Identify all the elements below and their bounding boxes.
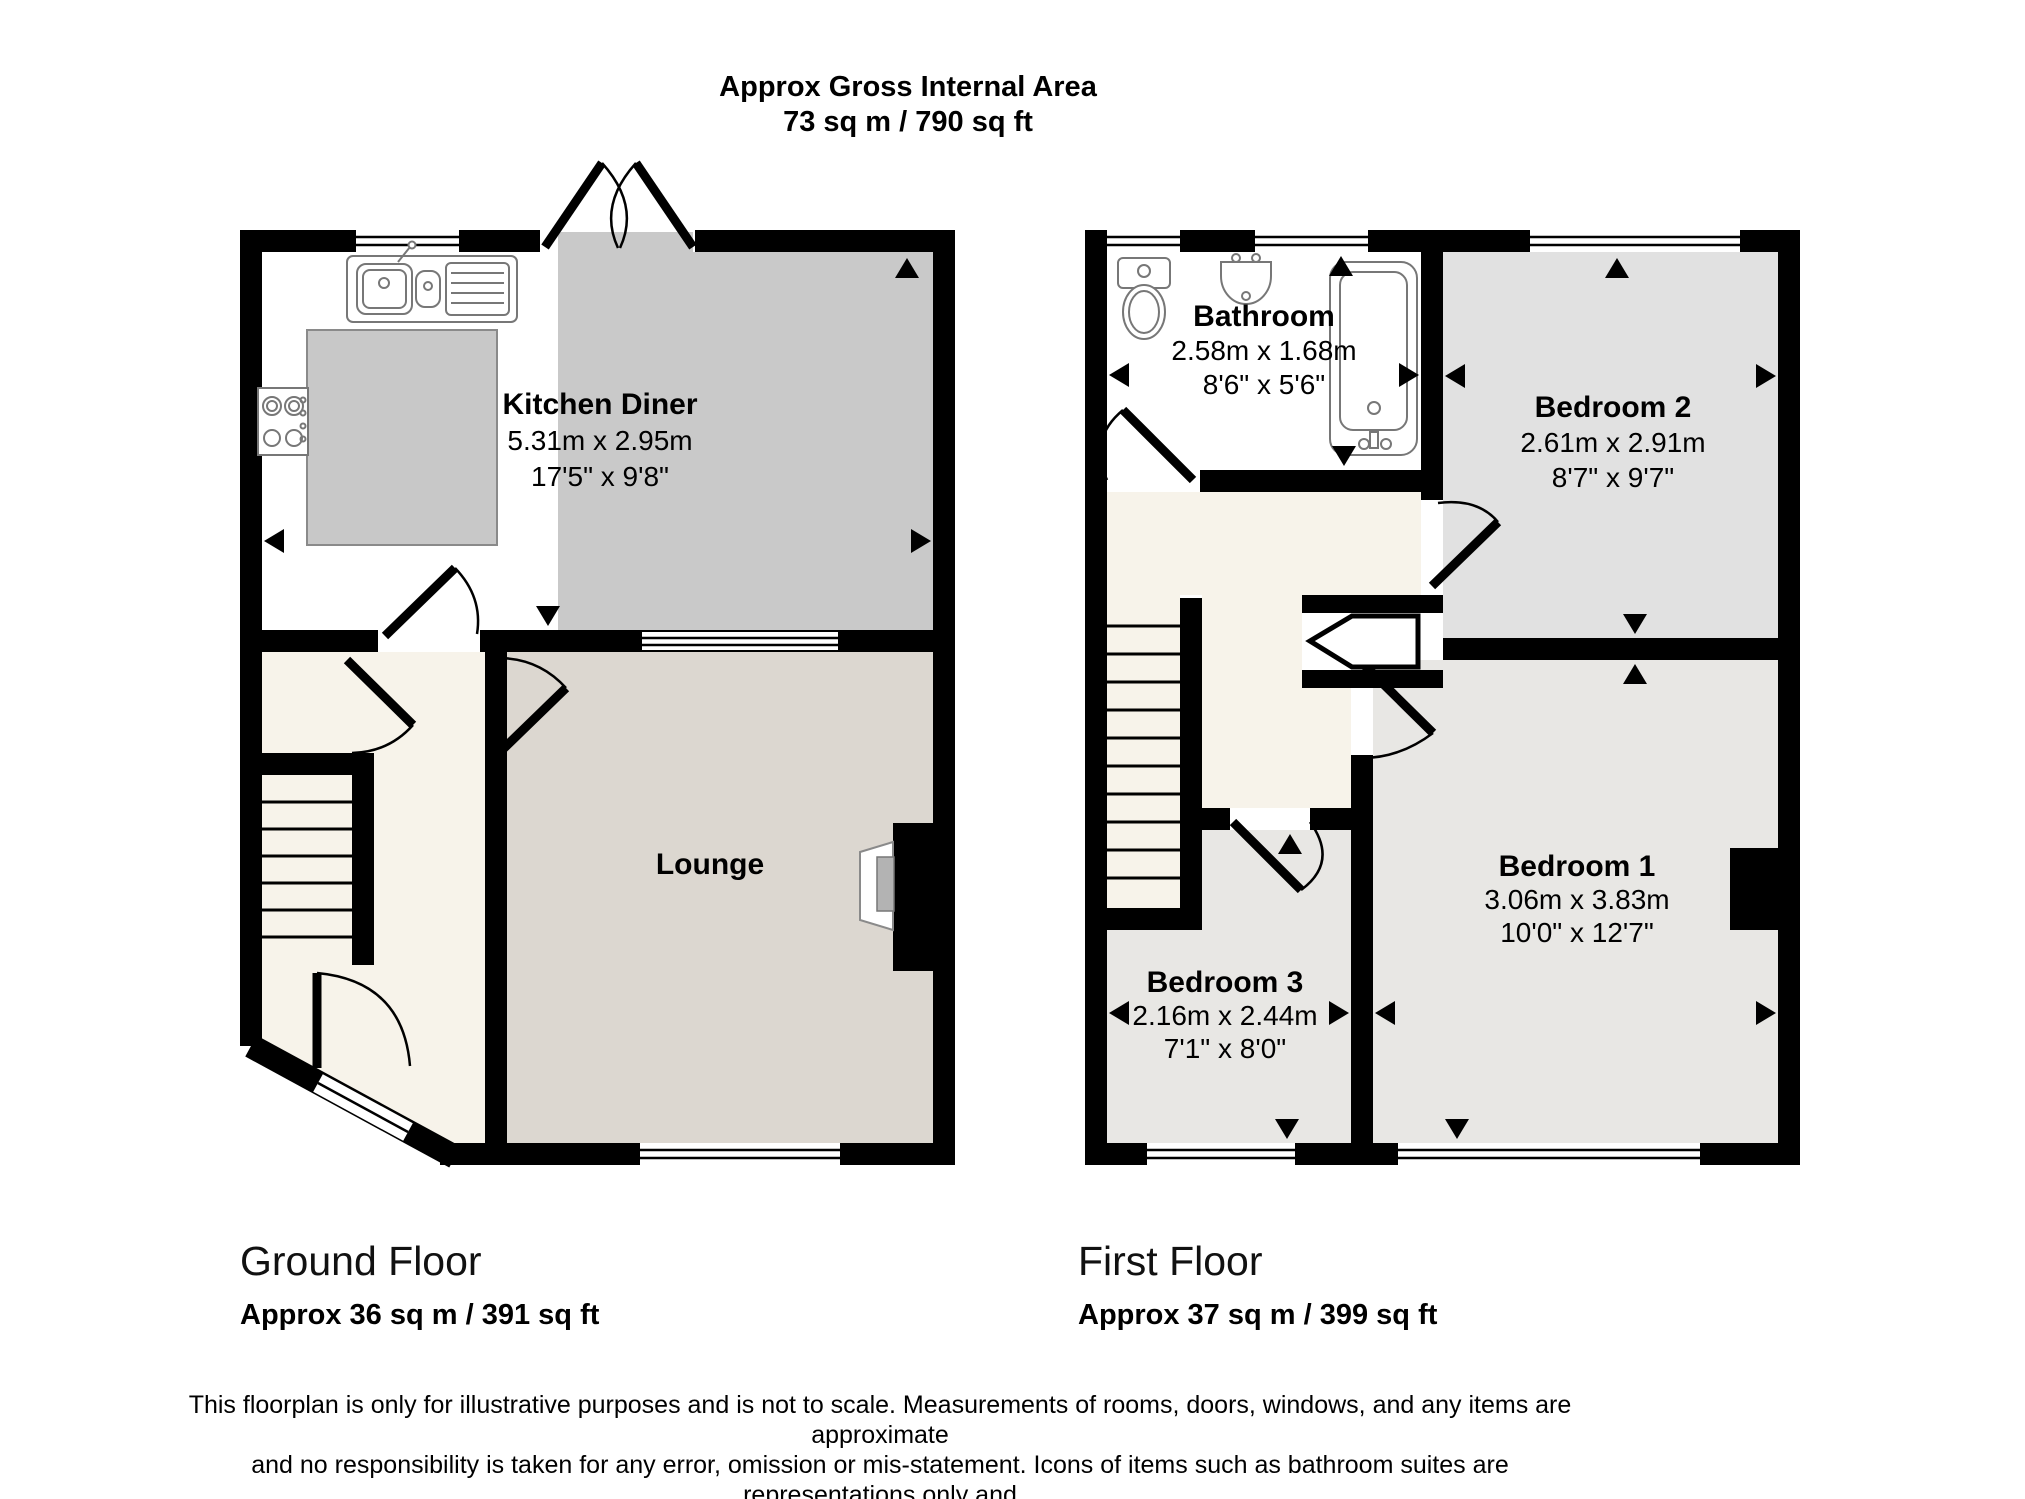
bedroom3-imperial: 7'1" x 8'0"	[1164, 1033, 1286, 1064]
bathroom-label: Bathroom	[1193, 300, 1335, 333]
bedroom2-label: Bedroom 2	[1535, 391, 1692, 424]
sink-icon	[347, 242, 517, 323]
fireplace-tv-icon	[860, 842, 894, 930]
internal-hatch-window	[642, 632, 838, 650]
arrow-left-icon	[1109, 363, 1129, 387]
bedroom1-window	[1398, 1143, 1700, 1165]
disclaimer-line1: This floorplan is only for illustrative …	[180, 1390, 1580, 1450]
bedroom3-label: Bedroom 3	[1147, 966, 1304, 999]
ground-floor-plan: Kitchen Diner 5.31m x 2.95m 17'5" x 9'8"…	[240, 163, 955, 1165]
landing-floor	[1107, 492, 1421, 595]
lounge-label: Lounge	[656, 848, 764, 881]
page-title: Approx Gross Internal Area 73 sq m / 790…	[719, 70, 1097, 140]
bedroom1-label: Bedroom 1	[1499, 850, 1656, 883]
landing-floor	[1202, 595, 1302, 808]
first-floor-name: First Floor	[1078, 1238, 1437, 1285]
bathroom-window	[1255, 230, 1368, 252]
chimney-breast	[1730, 848, 1800, 930]
title-line1: Approx Gross Internal Area	[719, 70, 1097, 105]
disclaimer-line2: and no responsibility is taken for any e…	[180, 1450, 1580, 1499]
kitchen-diner-imperial: 17'5" x 9'8"	[531, 461, 669, 492]
ground-floor-caption: Ground Floor Approx 36 sq m / 391 sq ft	[240, 1238, 599, 1332]
bedroom2-metric: 2.61m x 2.91m	[1520, 427, 1705, 458]
first-floor-caption: First Floor Approx 37 sq m / 399 sq ft	[1078, 1238, 1437, 1332]
bedroom2-imperial: 8'7" x 9'7"	[1552, 462, 1674, 493]
bathroom-imperial: 8'6" x 5'6"	[1203, 369, 1325, 400]
kitchen-counter	[307, 330, 497, 545]
first-floor-area: Approx 37 sq m / 399 sq ft	[1078, 1299, 1437, 1332]
toilet-icon	[1118, 258, 1170, 339]
airing-cupboard-door	[1310, 616, 1418, 667]
bedroom1-imperial: 10'0" x 12'7"	[1500, 917, 1654, 948]
arrow-down-icon	[536, 606, 560, 626]
bathroom-door	[1100, 410, 1193, 480]
ground-floor-area: Approx 36 sq m / 391 sq ft	[240, 1299, 599, 1332]
ground-floor-name: Ground Floor	[240, 1238, 599, 1285]
kitchen-diner-metric: 5.31m x 2.95m	[507, 425, 692, 456]
bedroom3-window	[1147, 1143, 1295, 1165]
hob-icon	[258, 388, 308, 455]
bedroom1-metric: 3.06m x 3.83m	[1484, 884, 1669, 915]
bedroom3-metric: 2.16m x 2.44m	[1132, 1000, 1317, 1031]
disclaimer: This floorplan is only for illustrative …	[180, 1390, 1580, 1499]
lounge-window	[640, 1143, 840, 1165]
first-floor-plan: Bathroom 2.58m x 1.68m 8'6" x 5'6" Bedro…	[1085, 230, 1800, 1165]
chimney-breast	[893, 823, 955, 971]
landing-floor	[1302, 688, 1351, 808]
basin-icon	[1221, 254, 1271, 304]
kitchen-diner-label: Kitchen Diner	[502, 388, 697, 421]
arrow-left-icon	[264, 529, 284, 553]
kitchen-door	[385, 568, 478, 636]
floorplan-page: Kitchen Diner 5.31m x 2.95m 17'5" x 9'8"…	[0, 0, 2025, 1499]
bathroom-metric: 2.58m x 1.68m	[1171, 335, 1356, 366]
bathroom-window	[1107, 230, 1180, 252]
bedroom2-window	[1530, 230, 1740, 252]
stairwell-floor	[1107, 595, 1180, 930]
title-line2: 73 sq m / 790 sq ft	[719, 105, 1097, 140]
